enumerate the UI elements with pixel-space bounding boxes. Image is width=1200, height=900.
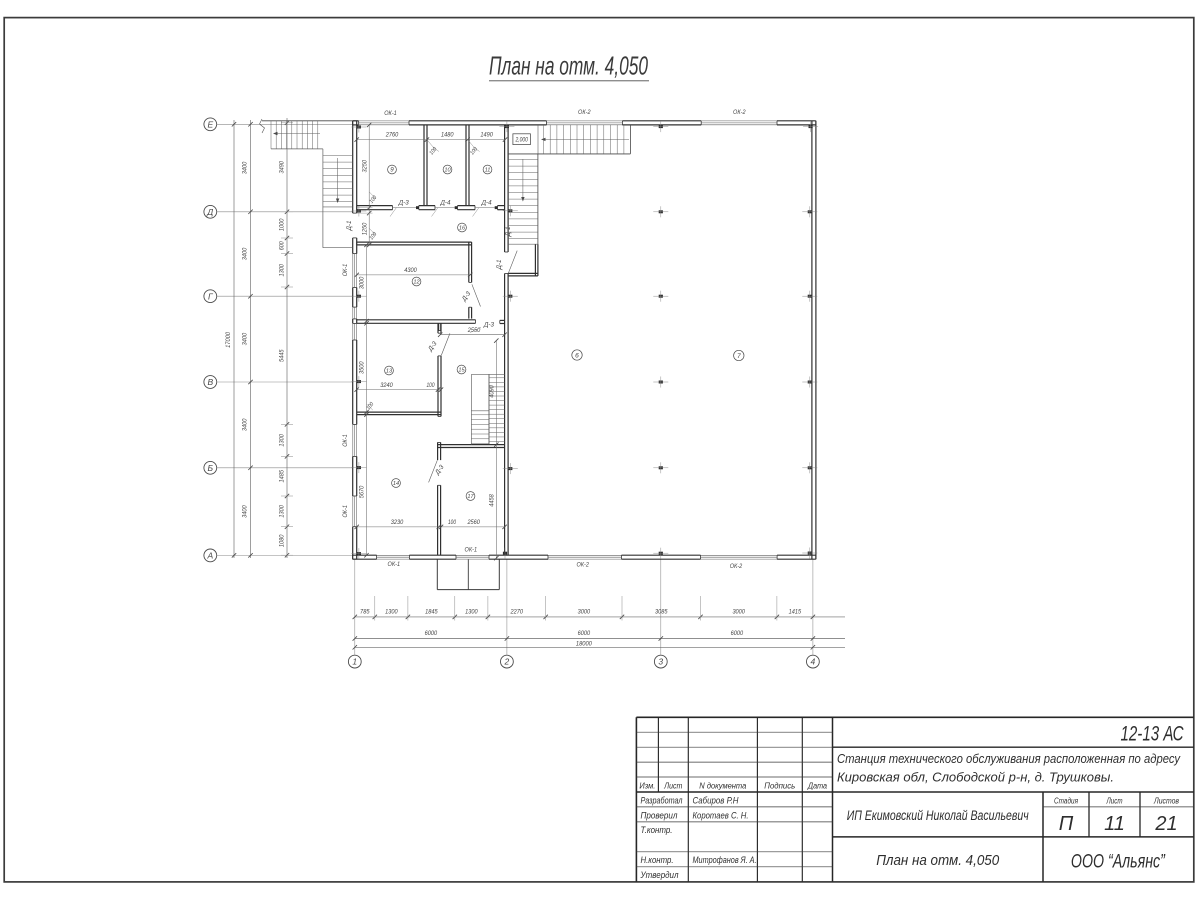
svg-text:Д-4: Д-4 — [481, 200, 492, 207]
svg-text:10: 10 — [444, 168, 451, 174]
svg-text:Д-3: Д-3 — [483, 321, 494, 328]
svg-text:600: 600 — [278, 241, 285, 250]
svg-text:2: 2 — [504, 657, 510, 667]
svg-text:1480: 1480 — [441, 132, 454, 139]
svg-text:Кировская обл, Слободской р-н,: Кировская обл, Слободской р-н, д. Трушко… — [837, 769, 1114, 784]
svg-text:100: 100 — [427, 383, 436, 389]
svg-text:6000: 6000 — [425, 630, 438, 637]
svg-text:Д-3: Д-3 — [398, 200, 409, 207]
svg-text:4300: 4300 — [404, 267, 417, 274]
svg-text:1000: 1000 — [278, 218, 285, 231]
svg-text:ОК-1: ОК-1 — [342, 264, 349, 277]
svg-text:3400: 3400 — [242, 332, 249, 345]
svg-text:ИП Екимовский Николай Васильев: ИП Екимовский Николай Васильевич — [847, 808, 1029, 823]
svg-text:2,000: 2,000 — [515, 137, 529, 144]
svg-text:Лист: Лист — [663, 781, 682, 790]
svg-text:ОК-1: ОК-1 — [342, 434, 349, 447]
svg-text:Разработал: Разработал — [641, 795, 683, 805]
svg-text:1300: 1300 — [278, 505, 285, 518]
svg-text:П: П — [1059, 813, 1074, 835]
svg-text:17000: 17000 — [225, 331, 232, 347]
svg-text:План на отм. 4,050: План на отм. 4,050 — [489, 51, 648, 81]
svg-text:Стадия: Стадия — [1054, 797, 1079, 806]
svg-text:ОК-1: ОК-1 — [388, 561, 401, 568]
svg-text:Лист: Лист — [1106, 797, 1123, 806]
svg-text:ОК-2: ОК-2 — [733, 109, 746, 116]
svg-text:1845: 1845 — [425, 609, 438, 616]
svg-text:В: В — [207, 377, 213, 387]
svg-text:9: 9 — [390, 167, 394, 174]
svg-text:1: 1 — [352, 657, 357, 667]
svg-text:785: 785 — [360, 609, 370, 616]
svg-text:Проверил: Проверил — [641, 810, 678, 820]
svg-text:Утвердил: Утвердил — [640, 870, 679, 880]
svg-text:3400: 3400 — [242, 418, 249, 431]
svg-text:5445: 5445 — [278, 349, 285, 362]
svg-text:4458: 4458 — [489, 494, 496, 507]
svg-text:ОК-1: ОК-1 — [465, 547, 478, 554]
svg-text:13: 13 — [386, 369, 393, 375]
svg-text:Д: Д — [206, 207, 213, 217]
svg-text:Т.контр.: Т.контр. — [641, 825, 673, 835]
svg-text:3: 3 — [658, 657, 663, 667]
svg-text:1300: 1300 — [278, 434, 285, 447]
svg-text:А: А — [206, 550, 213, 560]
svg-text:6000: 6000 — [731, 630, 744, 637]
svg-text:3000: 3000 — [732, 609, 745, 616]
svg-text:Н.контр.: Н.контр. — [641, 855, 674, 865]
svg-text:Б: Б — [208, 463, 214, 473]
svg-text:1080: 1080 — [278, 534, 285, 547]
svg-text:3000: 3000 — [359, 276, 366, 289]
svg-text:16: 16 — [459, 226, 466, 232]
svg-text:Е: Е — [207, 119, 213, 129]
svg-text:ОК-2: ОК-2 — [576, 562, 589, 569]
svg-text:1485: 1485 — [278, 470, 285, 483]
svg-text:Д-1: Д-1 — [505, 227, 512, 238]
svg-text:ОК-2: ОК-2 — [730, 563, 743, 570]
svg-text:Д-1: Д-1 — [496, 260, 503, 271]
svg-text:ОК-2: ОК-2 — [578, 109, 591, 116]
svg-text:ОК-1: ОК-1 — [342, 505, 349, 518]
svg-text:3250: 3250 — [362, 160, 369, 173]
svg-text:Д-4: Д-4 — [440, 200, 451, 207]
svg-text:4090: 4090 — [489, 385, 496, 398]
svg-text:N документа: N документа — [699, 781, 747, 790]
svg-text:1415: 1415 — [789, 609, 802, 616]
svg-text:Подпись: Подпись — [764, 781, 795, 790]
svg-text:1300: 1300 — [385, 609, 398, 616]
svg-text:1490: 1490 — [480, 132, 493, 139]
svg-text:Митрофанов Я. А.: Митрофанов Я. А. — [693, 855, 757, 865]
svg-text:5670: 5670 — [359, 485, 366, 498]
svg-text:1250: 1250 — [362, 222, 369, 235]
svg-text:3400: 3400 — [242, 505, 249, 518]
svg-text:12-13 АС: 12-13 АС — [1121, 723, 1185, 746]
svg-text:18000: 18000 — [576, 640, 592, 647]
svg-text:3240: 3240 — [380, 382, 393, 389]
svg-text:Изм.: Изм. — [639, 781, 655, 790]
svg-text:3400: 3400 — [242, 247, 249, 260]
svg-text:Коротаев С. Н.: Коротаев С. Н. — [693, 810, 749, 820]
svg-text:ООО “Альянс”: ООО “Альянс” — [1071, 852, 1166, 873]
svg-text:Сабиров Р.Н: Сабиров Р.Н — [693, 795, 740, 805]
svg-text:3085: 3085 — [655, 609, 668, 616]
svg-text:21: 21 — [1154, 813, 1177, 835]
svg-text:3400: 3400 — [242, 161, 249, 174]
svg-text:2760: 2760 — [385, 132, 399, 139]
svg-text:ОК-1: ОК-1 — [384, 110, 397, 117]
svg-text:2550: 2550 — [467, 327, 481, 334]
svg-text:3230: 3230 — [391, 519, 404, 526]
svg-text:Листов: Листов — [1153, 797, 1179, 806]
svg-text:11: 11 — [485, 168, 491, 174]
svg-text:1300: 1300 — [465, 609, 478, 616]
svg-text:Дата: Дата — [807, 781, 827, 790]
svg-text:15: 15 — [458, 368, 465, 374]
svg-text:14: 14 — [393, 481, 399, 487]
svg-text:Станция технического обслужива: Станция технического обслуживания распол… — [837, 751, 1181, 766]
svg-text:11: 11 — [1104, 813, 1125, 835]
svg-text:7: 7 — [737, 353, 741, 360]
svg-text:3500: 3500 — [359, 361, 366, 374]
svg-text:3490: 3490 — [278, 161, 285, 174]
svg-text:12: 12 — [413, 280, 420, 286]
svg-text:План на отм. 4,050: План на отм. 4,050 — [876, 852, 1000, 869]
svg-text:Д-1: Д-1 — [346, 221, 353, 232]
svg-text:4: 4 — [811, 657, 816, 667]
svg-text:100: 100 — [448, 520, 457, 526]
svg-text:2560: 2560 — [467, 519, 481, 526]
svg-text:1300: 1300 — [278, 264, 285, 277]
svg-text:17: 17 — [467, 494, 474, 500]
svg-text:6000: 6000 — [578, 630, 591, 637]
svg-text:6: 6 — [575, 352, 579, 359]
svg-text:3000: 3000 — [578, 609, 591, 616]
svg-text:2270: 2270 — [510, 609, 524, 616]
